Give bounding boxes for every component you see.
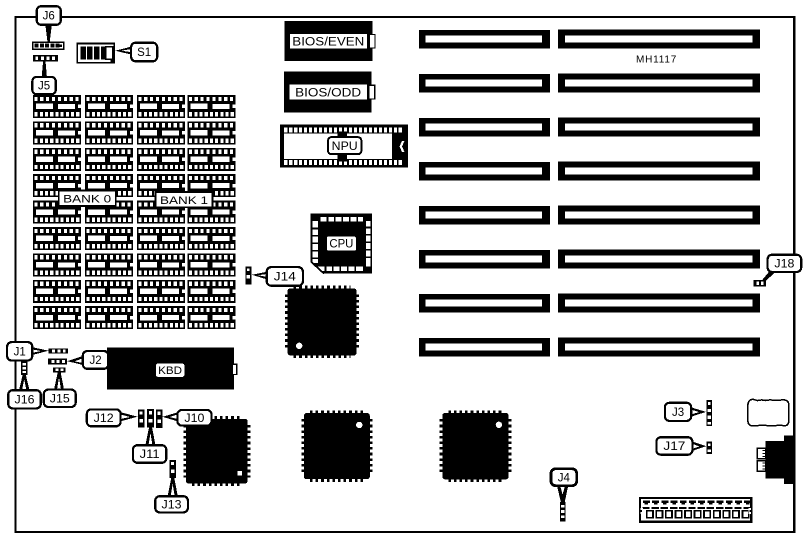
svg-text:BIOS/ODD: BIOS/ODD bbox=[295, 87, 361, 99]
svg-text:J5: J5 bbox=[38, 81, 50, 93]
svg-text:J6: J6 bbox=[43, 11, 55, 23]
svg-text:BIOS/EVEN: BIOS/EVEN bbox=[292, 36, 364, 48]
svg-text:J12: J12 bbox=[94, 413, 114, 425]
svg-text:BANK 0: BANK 0 bbox=[63, 194, 111, 206]
svg-text:J17: J17 bbox=[663, 441, 685, 453]
svg-text:J11: J11 bbox=[140, 449, 160, 461]
svg-text:J10: J10 bbox=[184, 413, 204, 425]
svg-text:J14: J14 bbox=[274, 272, 297, 284]
svg-text:J1: J1 bbox=[14, 346, 26, 358]
svg-text:MH1117: MH1117 bbox=[636, 55, 677, 66]
svg-text:J13: J13 bbox=[162, 499, 182, 511]
svg-text:S1: S1 bbox=[137, 47, 151, 59]
svg-text:CPU: CPU bbox=[329, 239, 353, 251]
svg-text:KBD: KBD bbox=[158, 365, 182, 377]
svg-text:J3: J3 bbox=[672, 407, 684, 419]
svg-text:J2: J2 bbox=[89, 355, 101, 367]
svg-text:J18: J18 bbox=[774, 258, 794, 270]
svg-text:J4: J4 bbox=[558, 472, 571, 484]
svg-text:J16: J16 bbox=[15, 394, 35, 406]
svg-text:BANK 1: BANK 1 bbox=[160, 195, 208, 207]
svg-text:J15: J15 bbox=[50, 393, 70, 405]
svg-text:NPU: NPU bbox=[332, 141, 358, 153]
